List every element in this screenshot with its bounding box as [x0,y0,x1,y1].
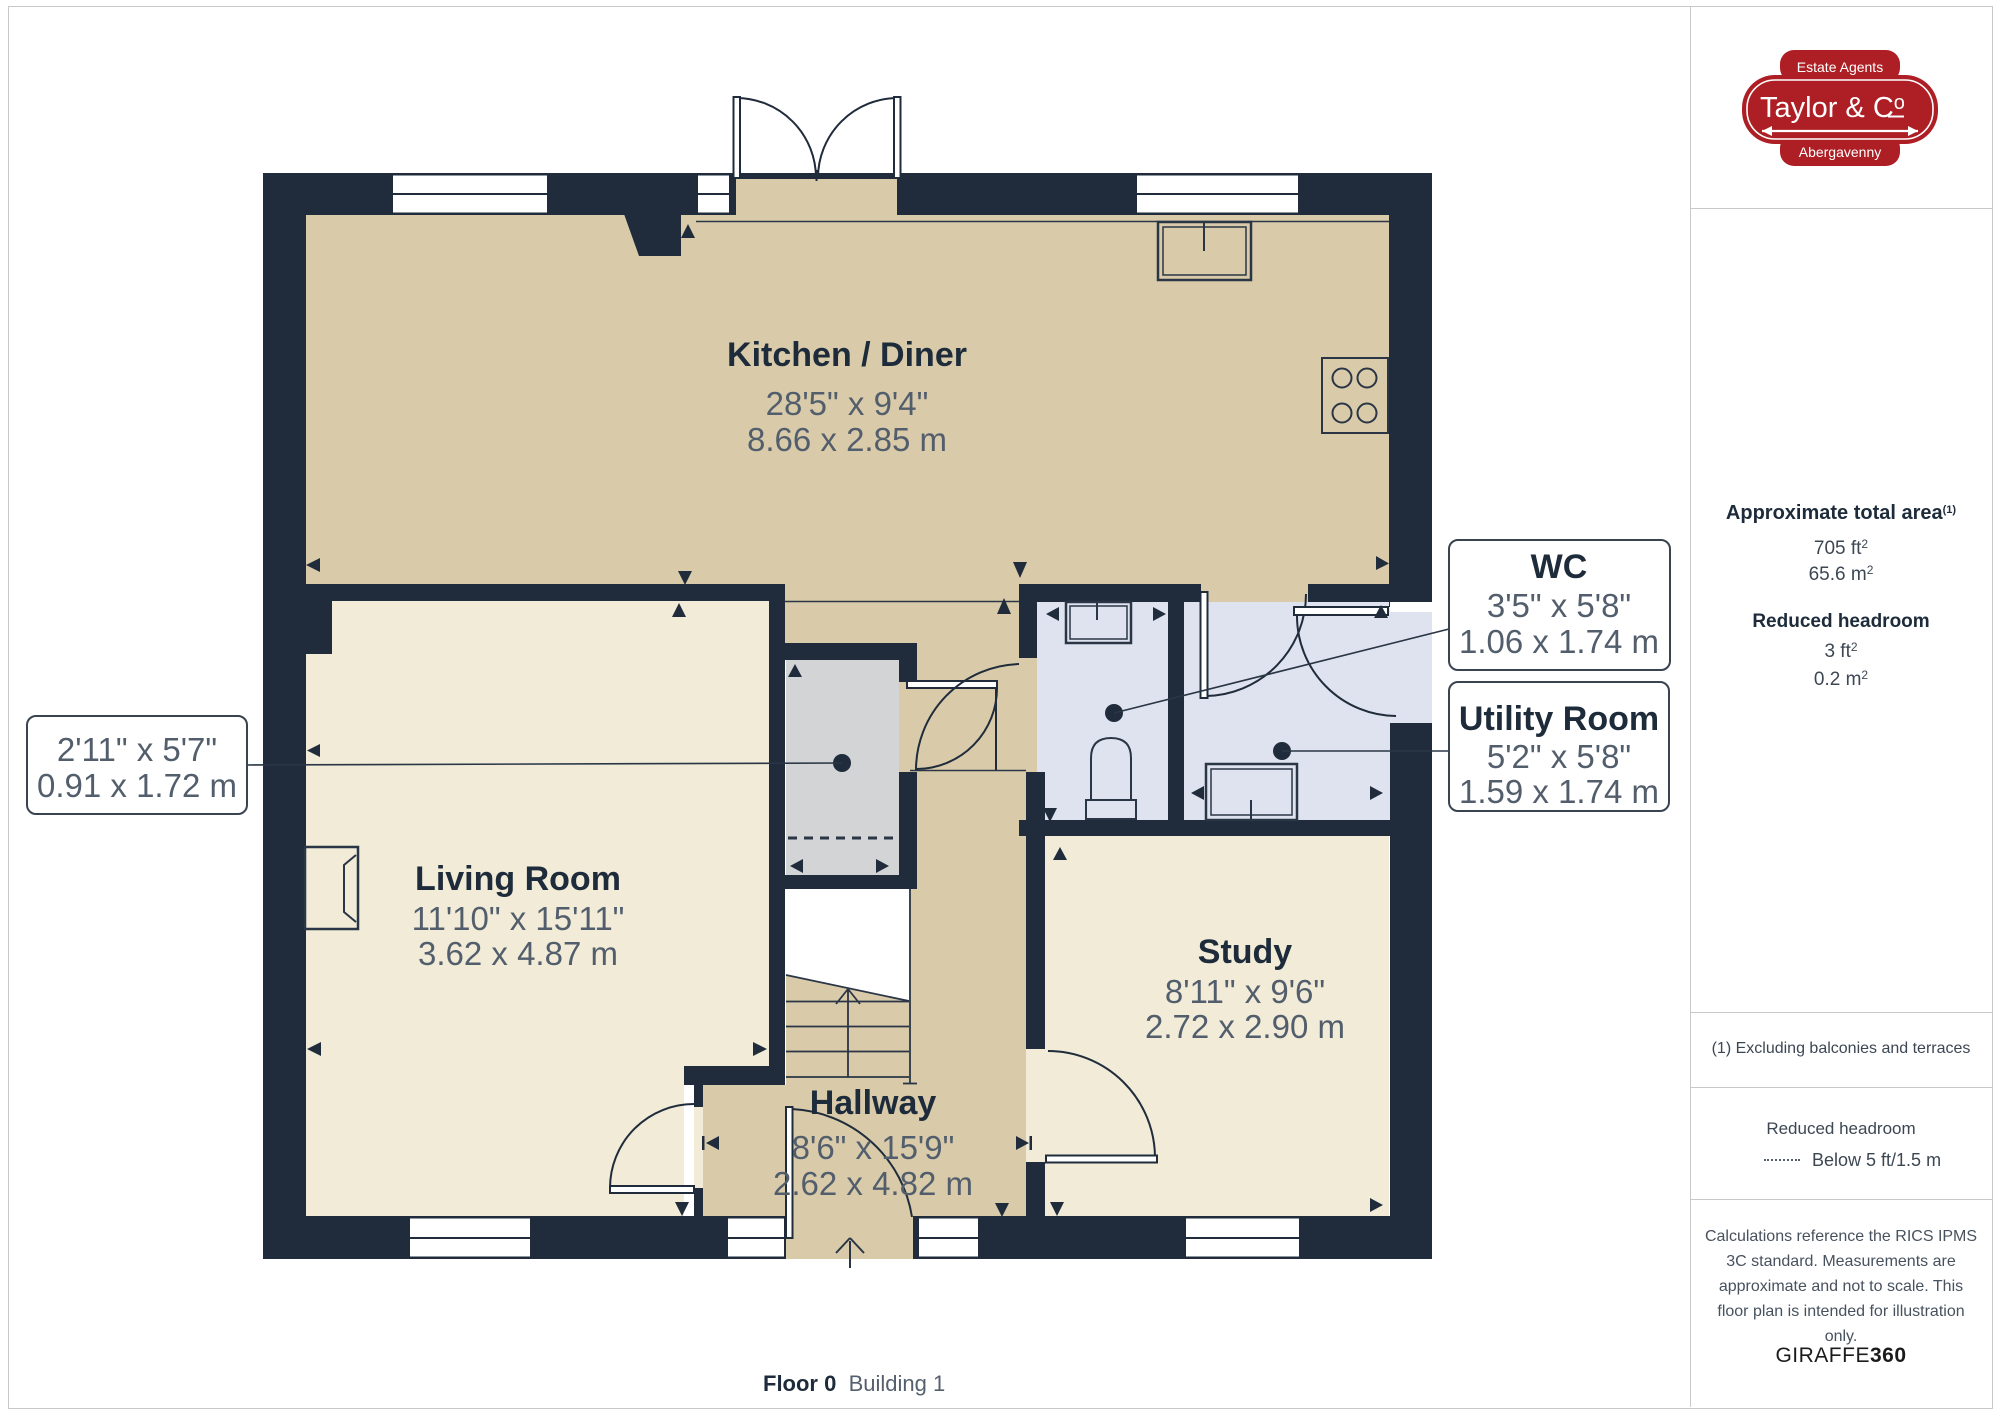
svg-text:8.66 x 2.85 m: 8.66 x 2.85 m [747,421,947,458]
svg-text:2.72 x 2.90 m: 2.72 x 2.90 m [1145,1008,1345,1045]
svg-text:3.62 x 4.87 m: 3.62 x 4.87 m [418,935,618,972]
svg-text:1.59 x 1.74 m: 1.59 x 1.74 m [1459,773,1659,810]
svg-text:Taylor & Co: Taylor & Co [1760,92,1905,124]
svg-text:8'11" x 9'6": 8'11" x 9'6" [1165,973,1325,1010]
svg-text:0.91 x 1.72 m: 0.91 x 1.72 m [37,767,237,804]
svg-text:Kitchen / Diner: Kitchen / Diner [727,336,967,374]
svg-text:Study: Study [1198,933,1293,971]
svg-text:Utility Room: Utility Room [1459,700,1659,738]
svg-text:Hallway: Hallway [810,1084,937,1122]
svg-text:2'11" x 5'7": 2'11" x 5'7" [57,731,217,768]
svg-text:8'6" x 15'9": 8'6" x 15'9" [792,1129,955,1166]
svg-text:5'2" x 5'8": 5'2" x 5'8" [1487,738,1631,775]
svg-text:Living Room: Living Room [415,860,621,898]
svg-text:1.06 x 1.74 m: 1.06 x 1.74 m [1459,623,1659,660]
svg-text:WC: WC [1531,548,1588,586]
svg-text:3'5" x 5'8": 3'5" x 5'8" [1487,587,1631,624]
svg-text:Estate Agents: Estate Agents [1797,59,1883,75]
svg-text:Abergavenny: Abergavenny [1799,144,1882,160]
svg-text:2.62 x 4.82 m: 2.62 x 4.82 m [773,1165,973,1202]
svg-text:11'10" x 15'11": 11'10" x 15'11" [412,900,625,937]
svg-text:28'5" x 9'4": 28'5" x 9'4" [766,385,929,422]
